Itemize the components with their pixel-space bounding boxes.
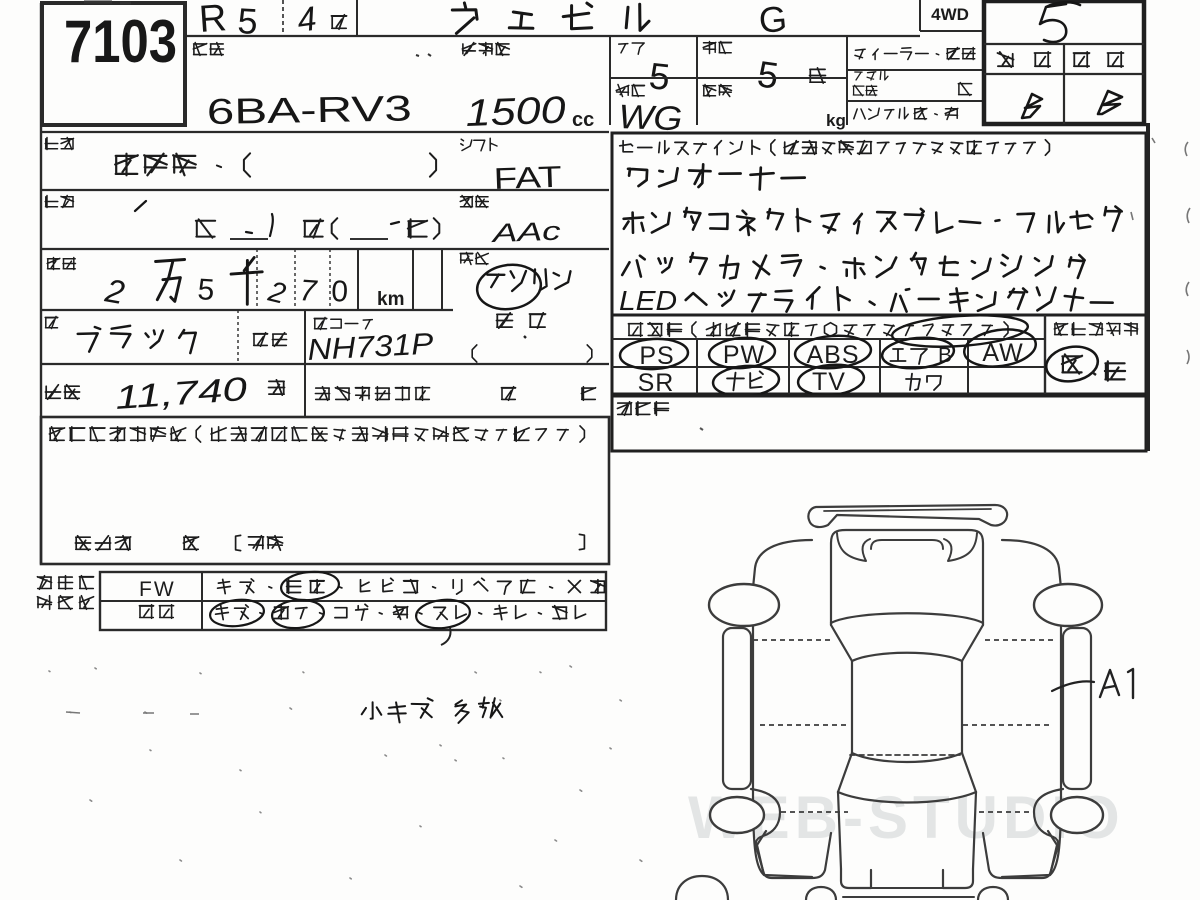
svg-text:5: 5 (647, 55, 672, 98)
svg-text:5: 5 (197, 273, 216, 307)
svg-text:LED: LED (619, 285, 677, 316)
svg-text:4WD: 4WD (931, 5, 969, 24)
svg-text:11,740: 11,740 (114, 370, 249, 416)
svg-text:5: 5 (755, 53, 781, 96)
svg-text:km: km (377, 289, 404, 310)
svg-text:4: 4 (295, 0, 319, 40)
svg-text:FW: FW (139, 578, 176, 601)
svg-text:R: R (198, 0, 228, 41)
svg-text:TV: TV (812, 368, 846, 396)
svg-text:2: 2 (264, 276, 288, 311)
svg-text:1500: 1500 (465, 90, 566, 135)
svg-text:2: 2 (102, 271, 127, 311)
svg-text:kg: kg (826, 111, 846, 130)
svg-text:7103: 7103 (64, 8, 177, 75)
svg-text:AAc: AAc (489, 216, 561, 248)
svg-text:7: 7 (299, 274, 319, 308)
svg-text:NH731P: NH731P (307, 327, 435, 367)
svg-text:0: 0 (331, 275, 349, 309)
svg-text:SR: SR (638, 369, 675, 397)
svg-text:6BA-RV3: 6BA-RV3 (206, 87, 412, 132)
svg-text:5: 5 (237, 0, 259, 42)
svg-text:G: G (757, 0, 788, 41)
svg-text:cc: cc (572, 109, 594, 131)
svg-text:FAT: FAT (493, 161, 562, 196)
